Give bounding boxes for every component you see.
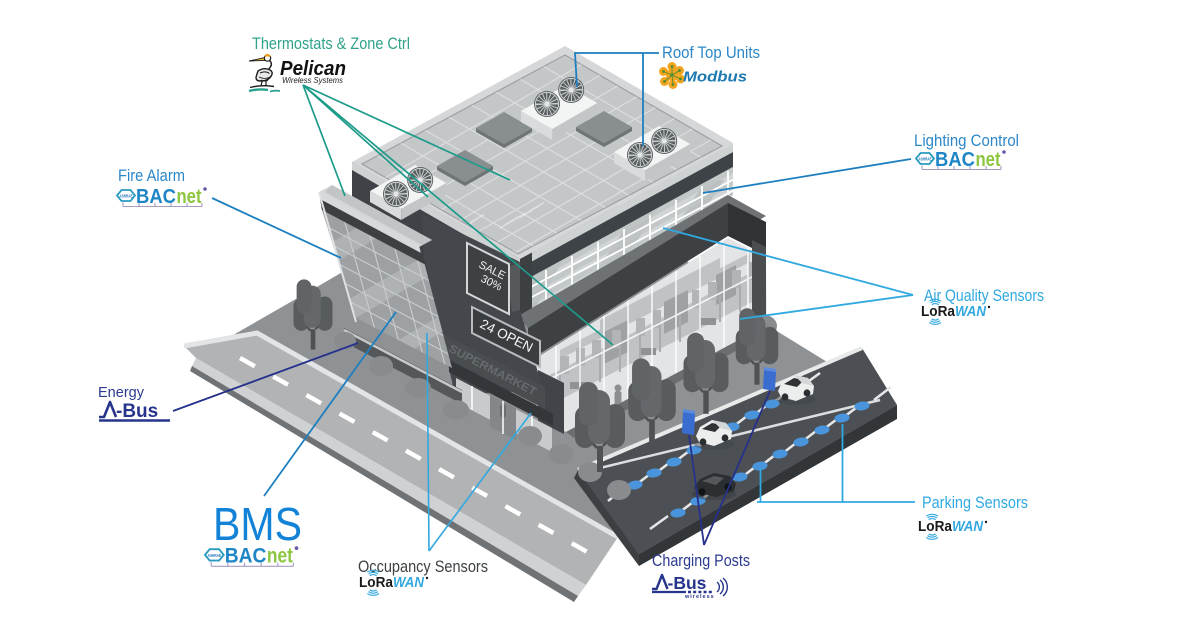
svg-text:WAN: WAN [955, 304, 986, 320]
svg-text:ASHRAE: ASHRAE [919, 156, 932, 161]
svg-text:net: net [177, 185, 202, 208]
svg-text:-Bus: -Bus [116, 401, 158, 422]
svg-text:Wireless Systems: Wireless Systems [282, 76, 343, 85]
svg-text:BAC: BAC [136, 185, 176, 208]
svg-text:BAC: BAC [935, 148, 975, 171]
svg-text:Fire Alarm: Fire Alarm [118, 167, 185, 185]
svg-text:ASHRAE: ASHRAE [120, 193, 133, 198]
svg-text:net: net [267, 544, 293, 568]
svg-text:BMS: BMS [213, 498, 302, 550]
svg-text:BAC: BAC [225, 544, 267, 568]
svg-text:LoRa: LoRa [918, 519, 953, 535]
svg-text:LoRa: LoRa [921, 304, 956, 320]
svg-text:Energy: Energy [98, 384, 144, 401]
svg-text:Parking Sensors: Parking Sensors [922, 494, 1028, 512]
svg-text:ASHRAE: ASHRAE [208, 553, 222, 558]
svg-text:net: net [976, 148, 1001, 171]
svg-text:Charging Posts: Charging Posts [652, 552, 750, 570]
svg-text:Air Quality Sensors: Air Quality Sensors [924, 287, 1044, 305]
svg-text:Roof Top Units: Roof Top Units [662, 44, 760, 62]
svg-text:wireless: wireless [684, 594, 715, 600]
svg-text:WAN: WAN [393, 575, 424, 591]
svg-text:Modbus: Modbus [683, 69, 747, 86]
svg-text:-Bus: -Bus [668, 573, 707, 593]
svg-text:WAN: WAN [952, 519, 983, 535]
svg-text:LoRa: LoRa [359, 575, 394, 591]
svg-text:Thermostats & Zone Ctrl: Thermostats & Zone Ctrl [252, 35, 410, 53]
